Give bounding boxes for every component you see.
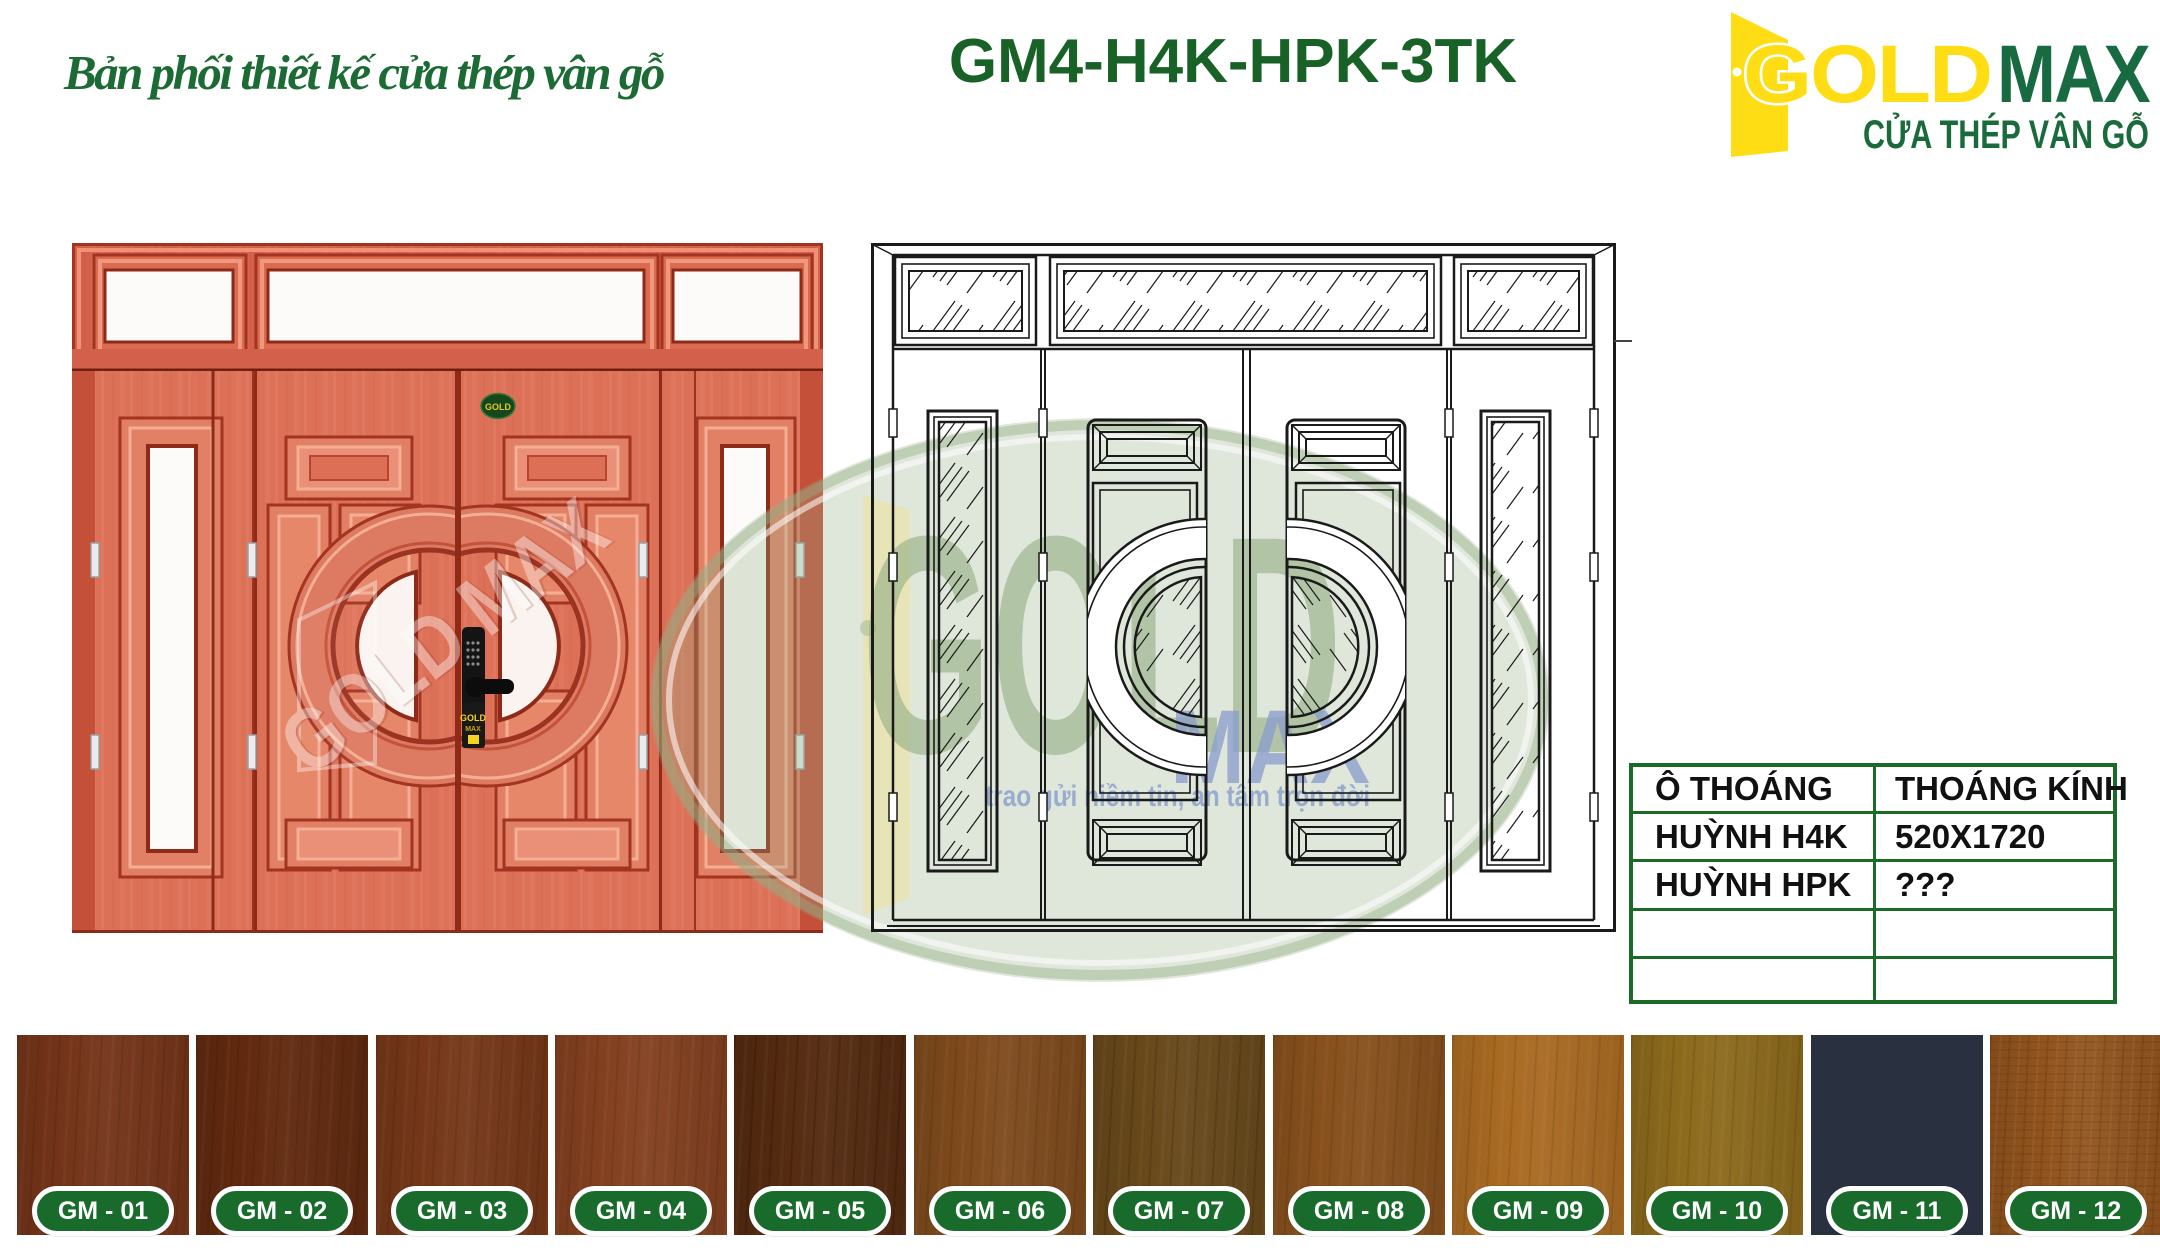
svg-text:GOLD: GOLD xyxy=(485,402,511,412)
svg-text:MAX: MAX xyxy=(1997,29,2150,120)
svg-text:CỬA THÉP VÂN GỖ: CỬA THÉP VÂN GỖ xyxy=(1863,111,2149,157)
svg-text:GOLD: GOLD xyxy=(460,713,486,723)
svg-text:MAX: MAX xyxy=(465,726,481,733)
svg-text:GOLD: GOLD xyxy=(1743,29,1991,120)
